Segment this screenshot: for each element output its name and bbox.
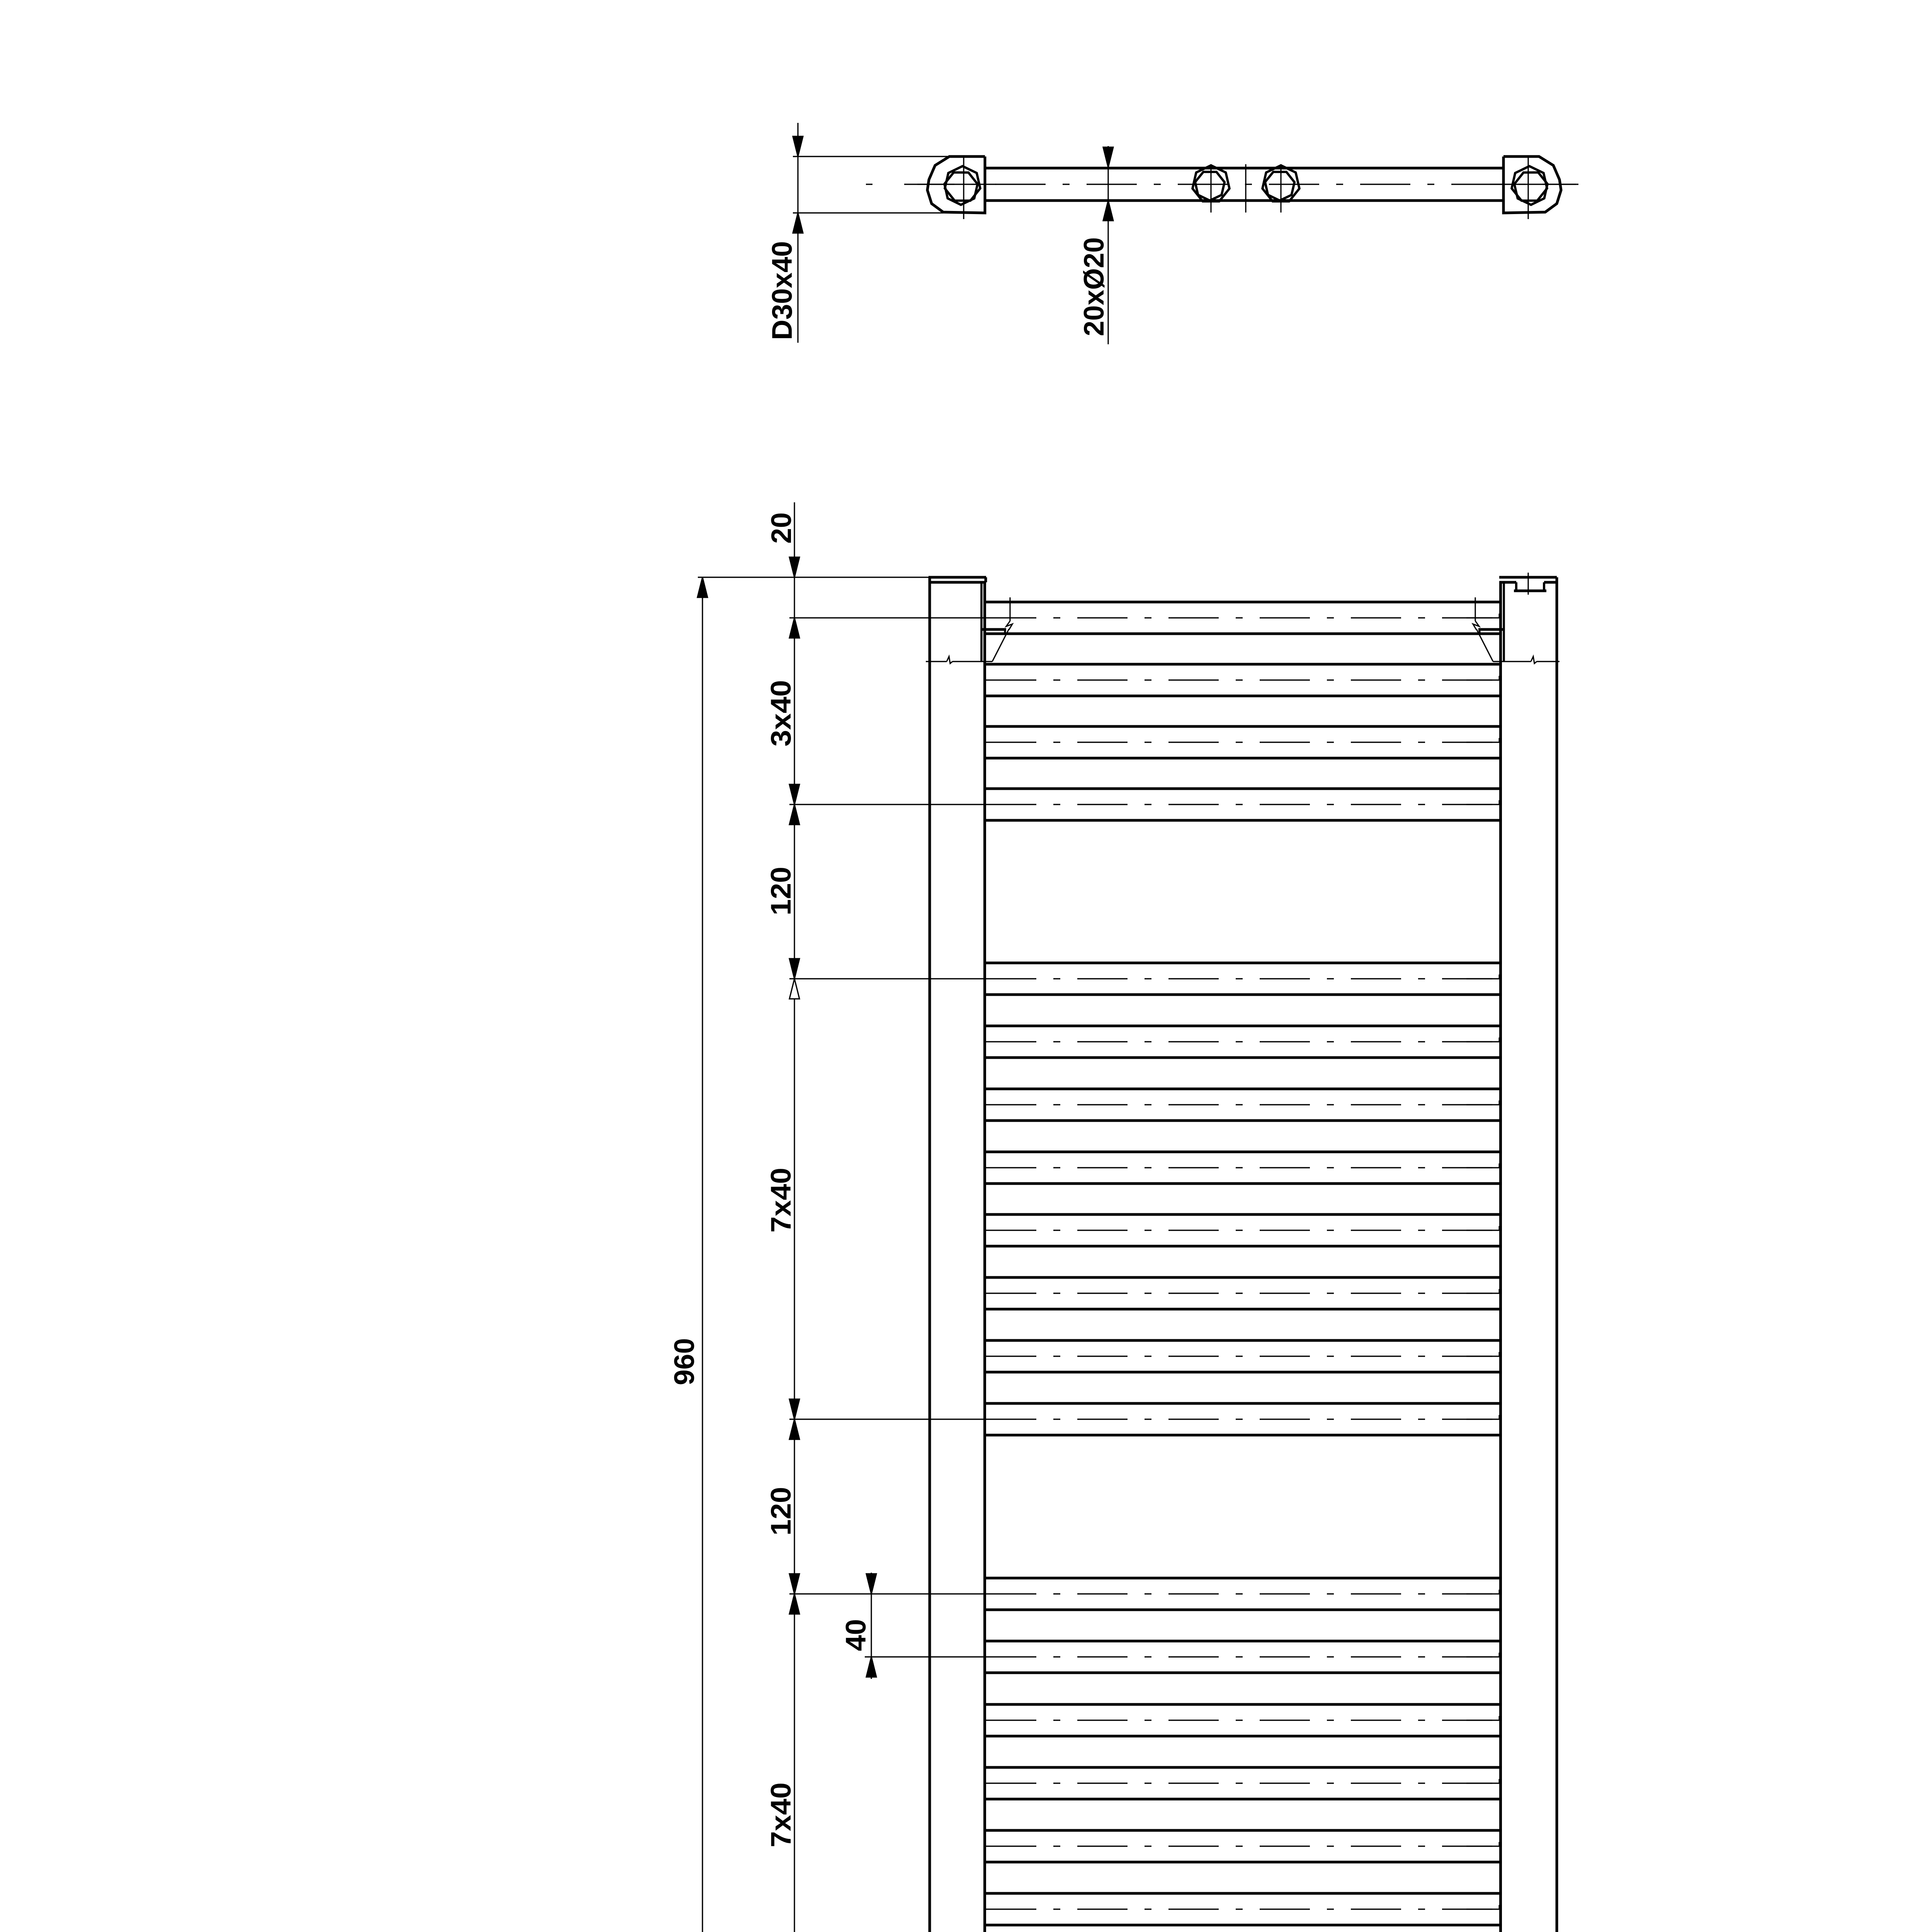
svg-text:120: 120 [765,867,797,915]
svg-text:7x40: 7x40 [765,1168,797,1233]
svg-text:40: 40 [840,1619,872,1651]
svg-text:3x40: 3x40 [765,680,797,747]
svg-text:960: 960 [669,1338,700,1385]
svg-text:D30x40: D30x40 [767,241,798,340]
svg-text:20xØ20: 20xØ20 [1078,237,1110,336]
svg-text:7x40: 7x40 [765,1782,797,1847]
svg-text:120: 120 [765,1487,797,1536]
svg-text:20: 20 [766,512,797,544]
